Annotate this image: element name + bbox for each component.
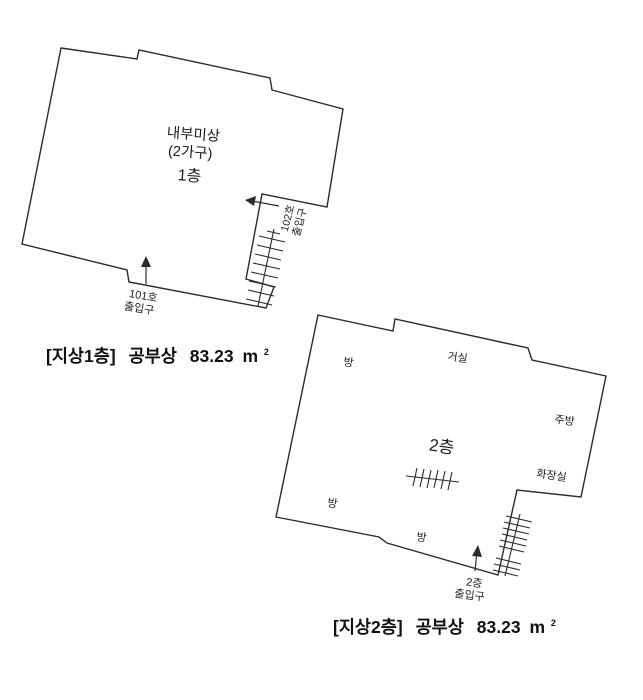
- floor2-caption-name: 공부상: [416, 617, 464, 637]
- entrance-101-label: 101호 출입구: [123, 287, 158, 318]
- floor2-room-bottom-label: 방: [416, 530, 428, 544]
- floor2-caption-area-unit-sup: 2: [551, 618, 556, 628]
- floor2-kitchen-label: 주방: [554, 413, 576, 429]
- floor2-room-top-left-label: 방: [343, 355, 355, 369]
- floor1-caption: [지상1층] 공부상 83.23 m 2: [46, 346, 269, 366]
- floor1-interior-label: 내부미상: [166, 124, 220, 145]
- floor1-floor-label: 1층: [177, 166, 202, 186]
- floor2-caption-area-value: 83.23: [477, 617, 521, 637]
- floor1-plan: 내부미상 (2가구) 1층 101호 출입구 102호 출입구: [22, 48, 343, 318]
- floor2-stairs-center-icon: [406, 468, 459, 490]
- entrance-101-arrow-icon: [141, 256, 151, 284]
- floorplan-page: 내부미상 (2가구) 1층 101호 출입구 102호 출입구 [지상1층] 공…: [0, 0, 643, 700]
- floor2-entrance-label: 2층 출입구: [454, 574, 488, 604]
- floor1-caption-name: 공부상: [129, 346, 177, 366]
- floor1-caption-area-unit: m: [242, 346, 258, 366]
- floor1-households-label: (2가구): [167, 142, 212, 162]
- floor2-caption: [지상2층] 공부상 83.23 m 2: [333, 617, 556, 637]
- floor1-stairs-icon: [246, 229, 285, 306]
- floor2-entrance-arrow-icon: [472, 545, 482, 571]
- floor1-caption-area-value: 83.23: [190, 346, 234, 366]
- floor2-floor-label: 2층: [428, 435, 456, 457]
- floor2-entrance-label-line1: 2층: [465, 575, 483, 590]
- floor1-caption-area-unit-sup: 2: [264, 347, 269, 357]
- floor2-room-left-label: 방: [327, 496, 339, 510]
- floor2-stairs-right-icon: [493, 514, 532, 576]
- floor2-bathroom-label: 화장실: [536, 467, 568, 484]
- floorplan-drawing: 내부미상 (2가구) 1층 101호 출입구 102호 출입구 [지상1층] 공…: [0, 0, 643, 700]
- floor1-caption-bracket: [지상1층]: [46, 346, 116, 366]
- floor2-caption-area-unit: m: [529, 617, 545, 637]
- floor1-center-labels: 내부미상 (2가구) 1층: [163, 124, 220, 187]
- entrance-102-label: 102호 출입구: [279, 203, 310, 238]
- floor2-plan: 방 거실 주방 화장실 2층 방 방 2층 출입구: [276, 315, 606, 604]
- floor2-caption-bracket: [지상2층]: [333, 617, 403, 637]
- floor2-living-room-label: 거실: [447, 350, 469, 366]
